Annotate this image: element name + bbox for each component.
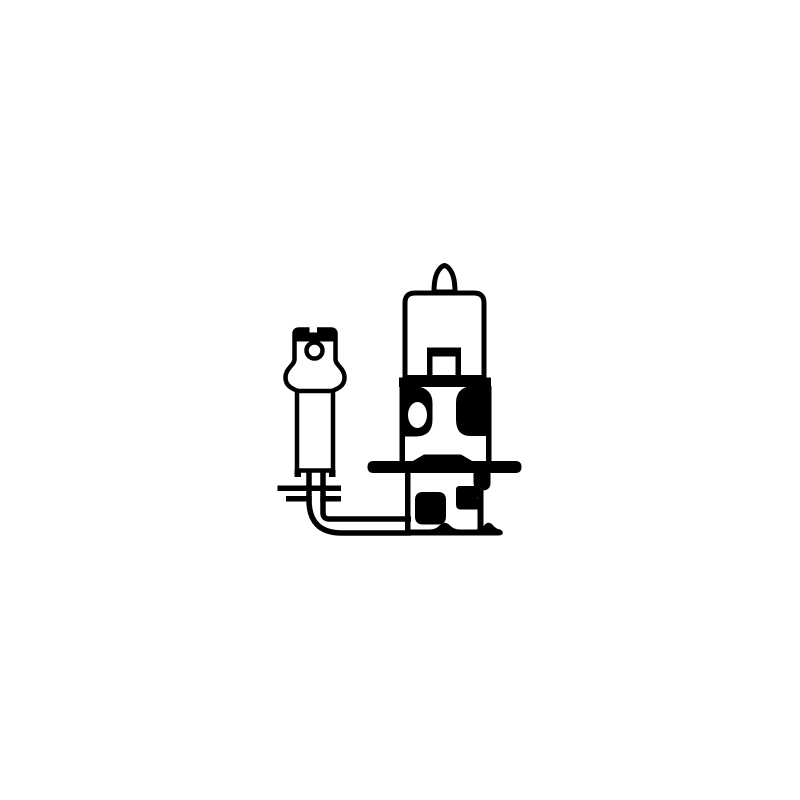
lower-base-wall-left-icon: [405, 473, 411, 534]
terminal-slit-icon: [310, 325, 318, 333]
page-background: [0, 0, 800, 800]
lower-base-block-icon: [456, 486, 481, 510]
terminal-hole-icon: [307, 343, 323, 359]
washer-bottom-right-icon: [320, 496, 341, 502]
wire-lead-inner-icon: [323, 469, 411, 519]
glass-envelope-icon: [405, 293, 484, 378]
base-collar-bar-icon: [399, 378, 491, 388]
lower-base-bottom-icon: [405, 523, 503, 536]
lower-base-blob-left-icon: [415, 492, 446, 525]
sleeve-foot-right-icon: [329, 470, 336, 477]
base-contact-right-icon: [456, 386, 491, 436]
insulating-sleeve-icon: [297, 390, 333, 471]
washer-top-icon: [278, 486, 342, 492]
base-contact-left-icon: [402, 386, 433, 437]
mounting-flange-icon: [368, 461, 522, 473]
washer-bottom-left-icon: [286, 496, 312, 502]
h3-bulb-illustration: [0, 0, 800, 800]
flange-boss-icon: [412, 455, 473, 462]
h3-bulb-drawing-canvas: [0, 0, 800, 800]
bulb-tip-icon: [434, 266, 455, 293]
sleeve-foot-left-icon: [295, 470, 302, 477]
